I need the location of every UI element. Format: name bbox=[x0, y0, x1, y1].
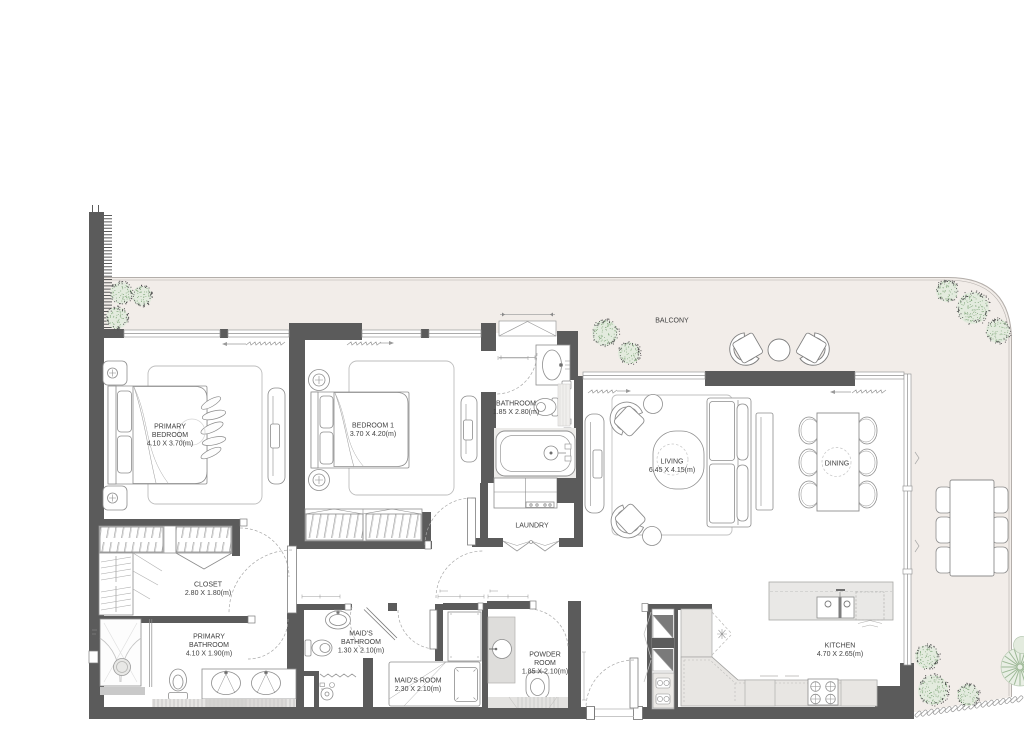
svg-text:1.85 X 2.10(m): 1.85 X 2.10(m) bbox=[522, 669, 568, 676]
svg-text:4.10 X 1.90(m): 4.10 X 1.90(m) bbox=[186, 651, 232, 658]
svg-text:6.45 X 4.15(m): 6.45 X 4.15(m) bbox=[649, 467, 695, 474]
svg-text:MAID'S: MAID'S bbox=[349, 631, 373, 638]
svg-text:LIVING: LIVING bbox=[661, 459, 684, 466]
svg-text:4.10 X 3.70(m): 4.10 X 3.70(m) bbox=[147, 441, 193, 448]
svg-text:2.30 X 2.10(m): 2.30 X 2.10(m) bbox=[395, 686, 441, 693]
svg-text:2.80 X 1.80(m): 2.80 X 1.80(m) bbox=[185, 590, 231, 597]
svg-text:1.85 X 2.80(m): 1.85 X 2.80(m) bbox=[493, 409, 539, 416]
svg-text:MAID'S ROOM: MAID'S ROOM bbox=[394, 678, 441, 685]
svg-text:CLOSET: CLOSET bbox=[194, 582, 223, 589]
svg-text:DINING: DINING bbox=[825, 461, 850, 468]
svg-text:PRIMARY: PRIMARY bbox=[154, 424, 186, 431]
svg-text:ROOM: ROOM bbox=[534, 660, 556, 667]
svg-text:BEDROOM: BEDROOM bbox=[152, 432, 188, 439]
svg-text:BALCONY: BALCONY bbox=[655, 318, 689, 325]
svg-text:PRIMARY: PRIMARY bbox=[193, 634, 225, 641]
svg-text:BATHROOM: BATHROOM bbox=[189, 642, 229, 649]
svg-text:1.30 X 2.10(m): 1.30 X 2.10(m) bbox=[338, 648, 384, 655]
svg-text:LAUNDRY: LAUNDRY bbox=[515, 523, 549, 530]
svg-text:4.70 X 2.65(m): 4.70 X 2.65(m) bbox=[817, 651, 863, 658]
svg-text:KITCHEN: KITCHEN bbox=[825, 643, 856, 650]
svg-text:3.70 X 4.20(m): 3.70 X 4.20(m) bbox=[350, 431, 396, 438]
svg-text:BATHROOM: BATHROOM bbox=[496, 401, 536, 408]
svg-text:POWDER: POWDER bbox=[529, 652, 561, 659]
svg-text:BEDROOM 1: BEDROOM 1 bbox=[352, 423, 394, 430]
svg-text:BATHROOM: BATHROOM bbox=[341, 639, 381, 646]
